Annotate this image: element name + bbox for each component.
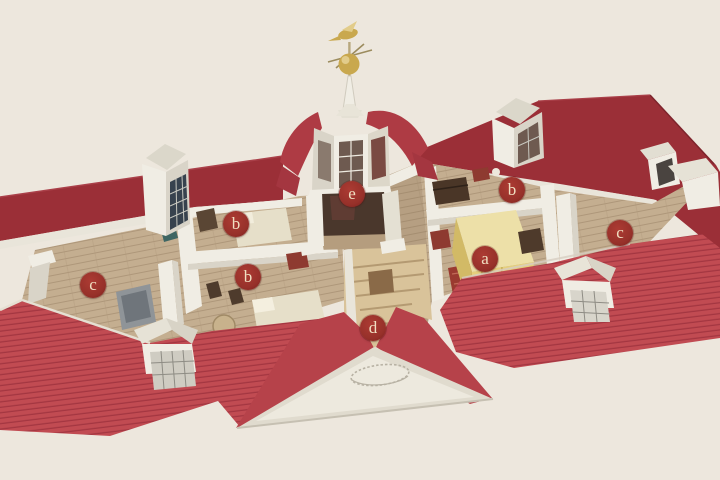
room-marker-b[interactable]: b [235,264,261,290]
room-marker-c[interactable]: c [80,272,106,298]
room-marker-b[interactable]: b [499,177,525,203]
room-marker-e[interactable]: e [339,181,365,207]
finial-ball-icon [339,54,360,75]
room-marker-a[interactable]: a [472,246,498,272]
cutaway-figure: abbbccde [0,0,720,480]
room-marker-d[interactable]: d [360,315,386,341]
room-marker-c[interactable]: c [607,220,633,246]
room-marker-b[interactable]: b [223,211,249,237]
